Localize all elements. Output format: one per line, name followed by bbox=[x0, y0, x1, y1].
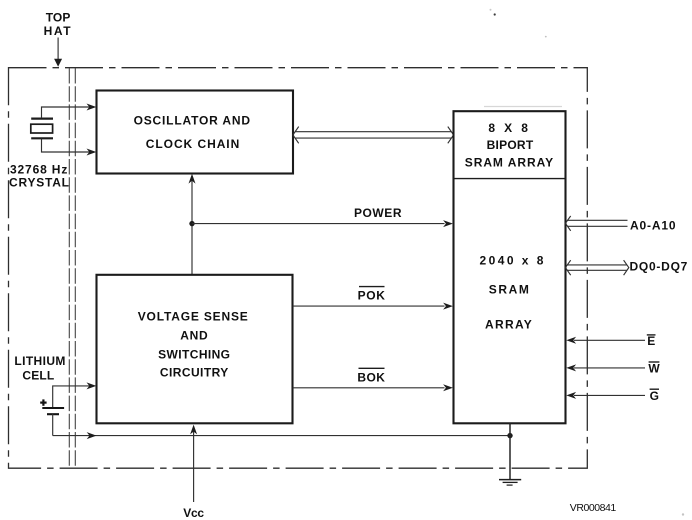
svg-text:8 X 8: 8 X 8 bbox=[488, 121, 531, 135]
svg-text:BOK: BOK bbox=[357, 371, 385, 385]
svg-text:SRAM: SRAM bbox=[489, 283, 531, 297]
svg-text:G: G bbox=[650, 389, 659, 403]
svg-text:VOLTAGE SENSE: VOLTAGE SENSE bbox=[138, 309, 249, 323]
svg-text:DQ0-DQ7: DQ0-DQ7 bbox=[630, 260, 689, 274]
svg-text:BIPORT: BIPORT bbox=[487, 138, 534, 152]
svg-text:CIRCUITRY: CIRCUITRY bbox=[160, 366, 229, 380]
svg-text:HAT: HAT bbox=[44, 24, 73, 38]
svg-text:POK: POK bbox=[358, 289, 386, 303]
svg-text:SRAM ARRAY: SRAM ARRAY bbox=[465, 156, 554, 170]
svg-text:2040 x 8: 2040 x 8 bbox=[480, 254, 546, 268]
svg-text:E: E bbox=[647, 334, 655, 348]
svg-text:OSCILLATOR AND: OSCILLATOR AND bbox=[134, 114, 251, 128]
svg-text:AND: AND bbox=[180, 328, 208, 342]
svg-text:CELL: CELL bbox=[22, 369, 54, 383]
svg-text:CRYSTAL: CRYSTAL bbox=[9, 175, 70, 189]
svg-text:SWITCHING: SWITCHING bbox=[158, 347, 230, 361]
svg-text:Vcc: Vcc bbox=[183, 506, 204, 520]
svg-text:W: W bbox=[648, 362, 660, 376]
svg-text:LITHIUM: LITHIUM bbox=[14, 354, 65, 368]
svg-text:POWER: POWER bbox=[354, 206, 402, 220]
svg-text:CLOCK CHAIN: CLOCK CHAIN bbox=[146, 137, 240, 151]
svg-text:A0-A10: A0-A10 bbox=[630, 218, 676, 232]
svg-text:TOP: TOP bbox=[46, 10, 71, 24]
svg-text:VR000841: VR000841 bbox=[570, 502, 617, 514]
svg-text:ARRAY: ARRAY bbox=[485, 318, 533, 332]
